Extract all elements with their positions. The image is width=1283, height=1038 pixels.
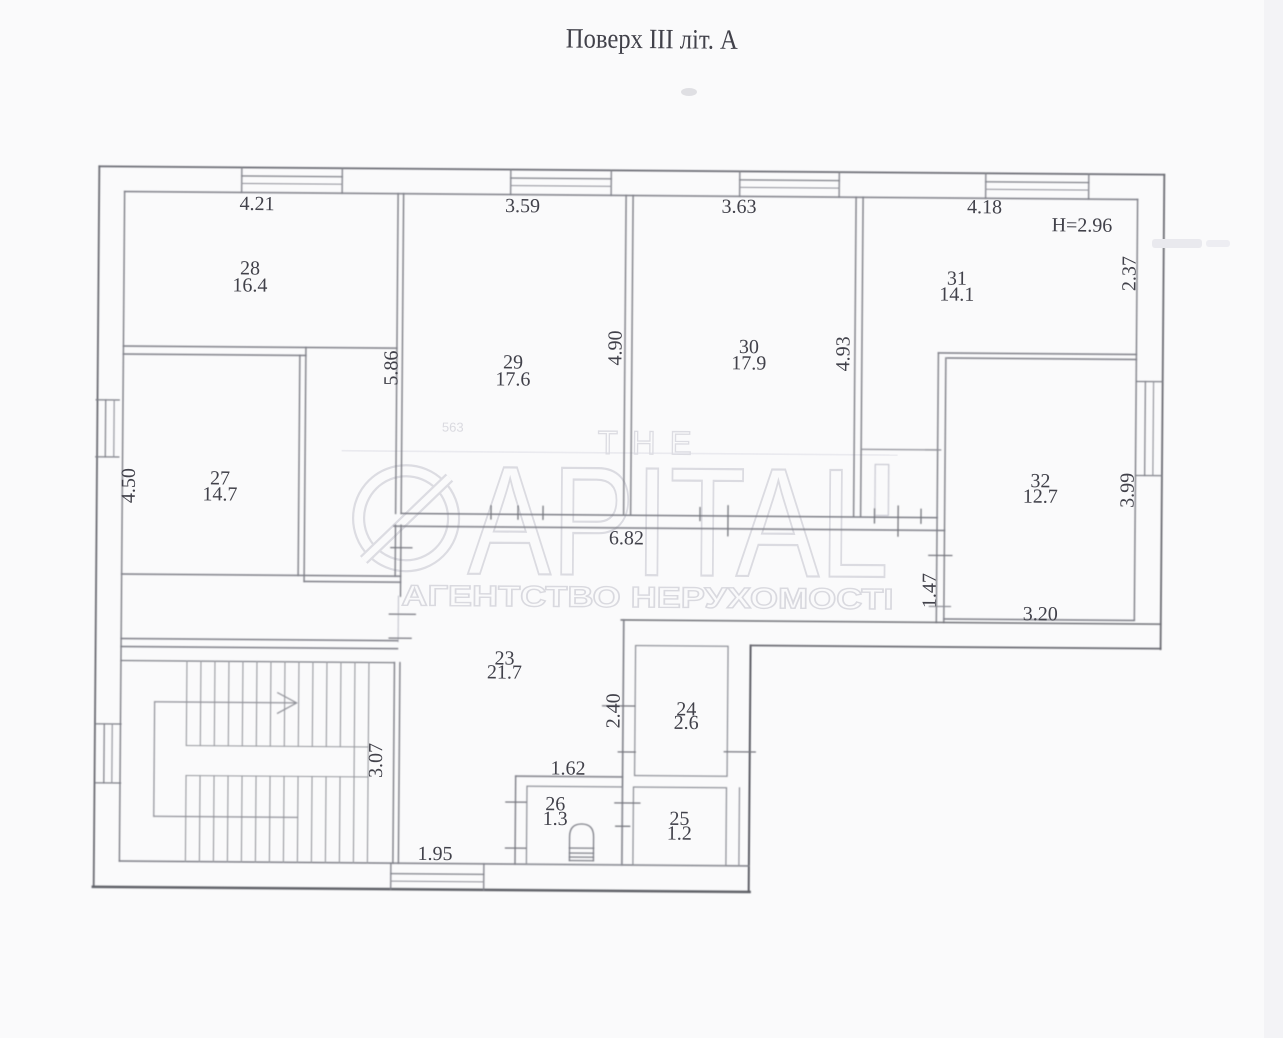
svg-text:4.50: 4.50: [118, 468, 140, 503]
svg-text:Поверх ІІІ літ. А: Поверх ІІІ літ. А: [566, 23, 739, 55]
svg-text:1.2: 1.2: [667, 822, 692, 844]
svg-text:3.20: 3.20: [1023, 603, 1058, 625]
svg-text:1.3: 1.3: [543, 808, 568, 830]
svg-text:3.63: 3.63: [721, 196, 756, 218]
svg-text:17.6: 17.6: [495, 368, 530, 390]
svg-text:4.90: 4.90: [604, 330, 626, 365]
svg-text:21.7: 21.7: [487, 661, 522, 683]
svg-text:14.1: 14.1: [939, 284, 974, 306]
svg-text:563: 563: [442, 420, 464, 435]
svg-text:5.86: 5.86: [380, 350, 402, 385]
svg-text:16.4: 16.4: [232, 274, 267, 296]
svg-text:1.47: 1.47: [919, 573, 941, 608]
svg-text:6.82: 6.82: [609, 527, 644, 549]
svg-text:1.95: 1.95: [417, 843, 452, 865]
svg-text:4.18: 4.18: [967, 196, 1002, 218]
svg-text:12.7: 12.7: [1023, 486, 1058, 508]
svg-text:3.99: 3.99: [1116, 473, 1138, 508]
svg-text:H=2.96: H=2.96: [1052, 214, 1113, 236]
svg-text:4.93: 4.93: [832, 336, 854, 371]
svg-text:4.21: 4.21: [239, 193, 274, 215]
svg-text:АГЕНТСТВО НЕРУХОМОСТІ: АГЕНТСТВО НЕРУХОМОСТІ: [401, 580, 893, 616]
svg-text:2.6: 2.6: [674, 712, 699, 734]
svg-text:2.40: 2.40: [602, 693, 624, 728]
svg-text:3.59: 3.59: [505, 195, 540, 217]
svg-text:2.37: 2.37: [1118, 256, 1140, 291]
svg-text:3.07: 3.07: [365, 743, 387, 778]
svg-text:1.62: 1.62: [550, 757, 585, 779]
svg-text:14.7: 14.7: [202, 483, 237, 505]
svg-text:17.9: 17.9: [731, 352, 766, 374]
